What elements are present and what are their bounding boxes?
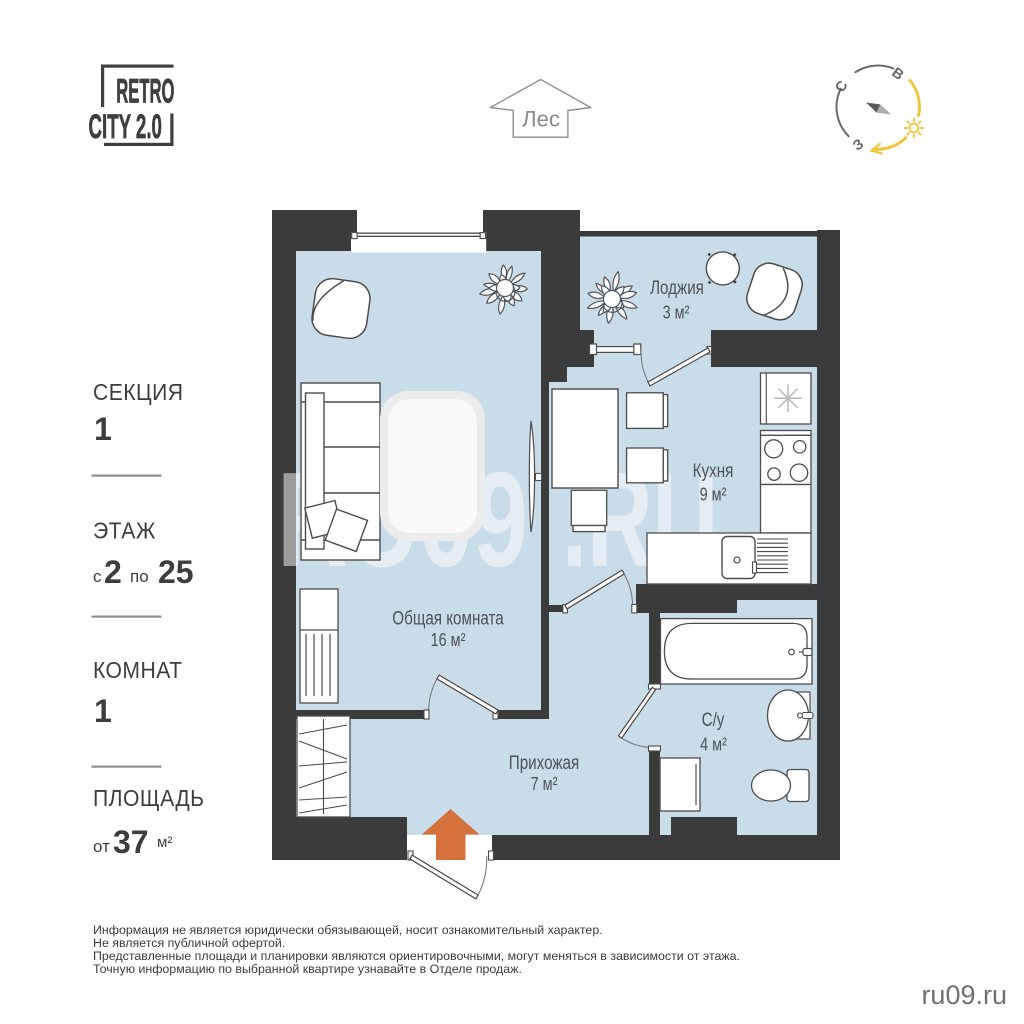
svg-text:Представленные площади и плани: Представленные площади и планировки явля… xyxy=(93,949,740,963)
svg-text:37: 37 xyxy=(113,824,149,860)
svg-text:4 м²: 4 м² xyxy=(700,734,727,755)
svg-text:9 м²: 9 м² xyxy=(700,484,727,505)
svg-text:7 м²: 7 м² xyxy=(531,773,558,794)
svg-text:Информация не является юридиче: Информация не является юридически обязыв… xyxy=(93,923,603,937)
svg-text:ЭТАЖ: ЭТАЖ xyxy=(93,517,156,543)
svg-text:с: с xyxy=(93,567,102,586)
svg-text:Лес: Лес xyxy=(522,107,560,132)
svg-text:СЕКЦИЯ: СЕКЦИЯ xyxy=(93,379,183,405)
svg-text:З: З xyxy=(850,136,867,154)
svg-text:С/у: С/у xyxy=(702,708,725,730)
svg-text:Общая комната: Общая комната xyxy=(392,607,504,629)
svg-text:ru09.ru: ru09.ru xyxy=(921,980,1007,1010)
svg-text:от: от xyxy=(93,837,110,856)
svg-text:м²: м² xyxy=(157,834,172,851)
svg-text:25: 25 xyxy=(158,554,194,590)
svg-text:Не является публичной офертой.: Не является публичной офертой. xyxy=(93,936,285,950)
svg-text:16 м²: 16 м² xyxy=(431,629,466,650)
svg-text:3 м²: 3 м² xyxy=(663,302,690,323)
svg-text:КОМНАТ: КОМНАТ xyxy=(93,657,182,683)
svg-text:С: С xyxy=(832,77,851,95)
svg-text:CITY 2.0: CITY 2.0 xyxy=(89,107,162,145)
svg-text:Кухня: Кухня xyxy=(693,459,734,481)
svg-text:Прихожая: Прихожая xyxy=(509,751,579,773)
svg-text:по: по xyxy=(130,567,149,586)
svg-text:Лоджия: Лоджия xyxy=(650,276,704,298)
svg-text:1: 1 xyxy=(94,693,112,729)
svg-text:ПЛОЩАДЬ: ПЛОЩАДЬ xyxy=(93,785,204,811)
svg-text:Точную информацию по выбранной: Точную информацию по выбранной квартире … xyxy=(93,962,522,976)
svg-text:2: 2 xyxy=(104,554,122,590)
svg-text:RETRO: RETRO xyxy=(116,72,174,110)
svg-text:1: 1 xyxy=(94,411,112,447)
